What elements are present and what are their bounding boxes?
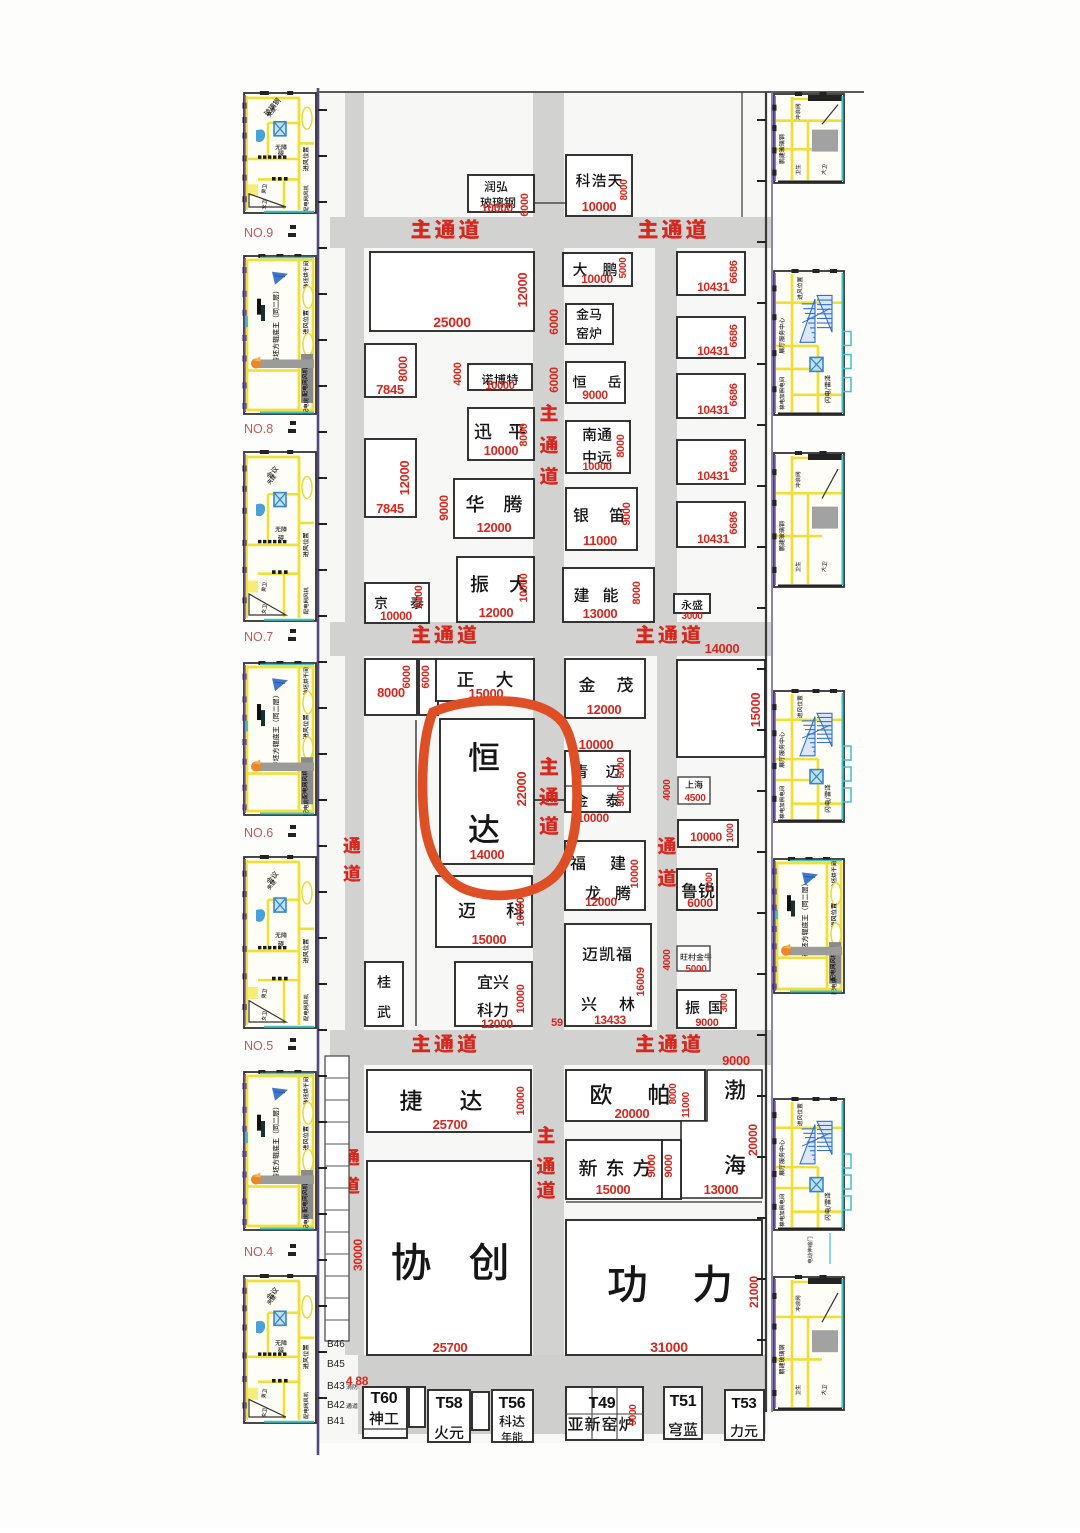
- svg-text:9000: 9000: [628, 1404, 639, 1426]
- svg-text:NO.6: NO.6: [244, 826, 273, 840]
- svg-text:12000: 12000: [585, 895, 617, 909]
- svg-text:6000: 6000: [413, 585, 425, 608]
- svg-text:B46: B46: [327, 1339, 345, 1350]
- svg-text:10000: 10000: [485, 380, 514, 392]
- svg-text:13000: 13000: [704, 1182, 739, 1197]
- svg-text:10000: 10000: [577, 811, 609, 825]
- svg-text:10000: 10000: [481, 201, 513, 215]
- svg-text:5000: 5000: [704, 872, 714, 891]
- svg-text:14000: 14000: [705, 641, 740, 656]
- svg-text:8000: 8000: [518, 423, 530, 446]
- svg-text:6686: 6686: [728, 383, 740, 406]
- svg-text:10000: 10000: [581, 272, 613, 286]
- svg-text:14000: 14000: [470, 847, 505, 862]
- svg-text:22000: 22000: [514, 772, 529, 807]
- svg-text:4000: 4000: [662, 779, 673, 801]
- svg-text:12000: 12000: [515, 273, 530, 308]
- svg-text:25000: 25000: [433, 314, 471, 330]
- svg-text:10431: 10431: [697, 469, 729, 483]
- svg-text:6000: 6000: [420, 665, 432, 688]
- svg-text:10000: 10000: [515, 1086, 527, 1115]
- svg-text:11000: 11000: [681, 1091, 692, 1117]
- svg-text:NO.4: NO.4: [244, 1245, 273, 1259]
- svg-text:9000: 9000: [437, 495, 451, 521]
- svg-text:10431: 10431: [697, 532, 729, 546]
- svg-text:8000: 8000: [619, 179, 630, 201]
- svg-text:5000: 5000: [618, 257, 629, 279]
- svg-text:9000: 9000: [646, 1154, 658, 1177]
- svg-text:T58: T58: [436, 1395, 463, 1412]
- svg-text:NO.9: NO.9: [244, 226, 273, 240]
- svg-text:8000: 8000: [668, 1083, 679, 1105]
- svg-text:NO.5: NO.5: [244, 1039, 273, 1053]
- svg-text:25700: 25700: [433, 1117, 468, 1132]
- svg-text:5000: 5000: [685, 964, 707, 975]
- svg-text:10000: 10000: [629, 859, 641, 888]
- svg-text:8000: 8000: [396, 356, 410, 382]
- svg-text:8000: 8000: [615, 434, 627, 457]
- svg-text:59: 59: [551, 1017, 563, 1029]
- svg-text:3000: 3000: [681, 611, 703, 622]
- svg-text:6000: 6000: [401, 665, 413, 688]
- svg-text:30000: 30000: [351, 1238, 365, 1270]
- svg-text:12000: 12000: [481, 1017, 513, 1031]
- svg-text:B42: B42: [327, 1400, 345, 1411]
- svg-text:T49: T49: [589, 1395, 616, 1412]
- svg-text:7845: 7845: [376, 501, 404, 516]
- svg-text:10000: 10000: [515, 897, 527, 926]
- svg-text:7845: 7845: [376, 382, 404, 397]
- svg-text:5000: 5000: [616, 757, 627, 779]
- svg-text:15000: 15000: [596, 1182, 631, 1197]
- svg-text:B41: B41: [327, 1416, 345, 1427]
- svg-text:4000: 4000: [662, 949, 673, 971]
- svg-text:15000: 15000: [748, 693, 763, 728]
- svg-text:10000: 10000: [518, 573, 530, 602]
- svg-text:B45: B45: [327, 1359, 345, 1370]
- svg-text:6000: 6000: [519, 193, 531, 216]
- svg-text:10000: 10000: [582, 461, 611, 473]
- svg-text:9000: 9000: [621, 502, 633, 525]
- svg-text:31000: 31000: [650, 1339, 688, 1355]
- svg-text:8000: 8000: [631, 581, 643, 604]
- svg-text:6686: 6686: [728, 449, 740, 472]
- svg-text:T60: T60: [371, 1390, 398, 1407]
- svg-text:20000: 20000: [615, 1106, 650, 1121]
- svg-text:9000: 9000: [695, 1017, 718, 1029]
- svg-text:11000: 11000: [583, 533, 617, 548]
- svg-text:10000: 10000: [690, 830, 722, 844]
- svg-text:10000: 10000: [380, 609, 412, 623]
- svg-text:9000: 9000: [582, 388, 608, 402]
- svg-text:10000: 10000: [582, 199, 617, 214]
- svg-text:T51: T51: [670, 1393, 697, 1410]
- svg-text:9000: 9000: [722, 1053, 750, 1068]
- svg-text:T53: T53: [732, 1395, 757, 1412]
- svg-text:10000: 10000: [484, 443, 519, 458]
- svg-text:12000: 12000: [397, 461, 412, 496]
- svg-text:12000: 12000: [477, 520, 512, 535]
- svg-text:13000: 13000: [583, 606, 618, 621]
- svg-text:9000: 9000: [663, 1154, 675, 1177]
- svg-text:5000: 5000: [616, 785, 627, 807]
- svg-text:10431: 10431: [697, 403, 729, 417]
- svg-text:13433: 13433: [594, 1013, 626, 1027]
- svg-text:21000: 21000: [747, 1275, 761, 1307]
- svg-text:1000: 1000: [725, 823, 735, 842]
- svg-text:6000: 6000: [687, 896, 713, 910]
- svg-text:6000: 6000: [547, 309, 561, 335]
- svg-text:12000: 12000: [587, 702, 622, 717]
- svg-text:10431: 10431: [697, 344, 729, 358]
- svg-text:4 88: 4 88: [346, 1374, 369, 1388]
- svg-text:NO.8: NO.8: [244, 422, 273, 436]
- svg-text:6686: 6686: [728, 511, 740, 534]
- svg-text:10431: 10431: [697, 280, 729, 294]
- svg-text:15000: 15000: [472, 932, 507, 947]
- svg-text:6000: 6000: [547, 367, 561, 393]
- svg-text:10000: 10000: [579, 737, 614, 752]
- svg-text:12000: 12000: [479, 605, 514, 620]
- svg-text:NO.7: NO.7: [244, 630, 273, 644]
- svg-text:4000: 4000: [452, 362, 464, 385]
- svg-text:10000: 10000: [515, 984, 527, 1013]
- svg-text:6686: 6686: [728, 260, 740, 283]
- svg-text:20000: 20000: [746, 1123, 760, 1155]
- svg-text:6686: 6686: [728, 324, 740, 347]
- svg-text:4500: 4500: [684, 793, 706, 804]
- svg-text:25700: 25700: [433, 1340, 468, 1355]
- svg-text:16009: 16009: [635, 967, 647, 996]
- svg-text:3000: 3000: [719, 993, 729, 1012]
- svg-text:T56: T56: [499, 1395, 526, 1412]
- svg-text:B43: B43: [327, 1381, 345, 1392]
